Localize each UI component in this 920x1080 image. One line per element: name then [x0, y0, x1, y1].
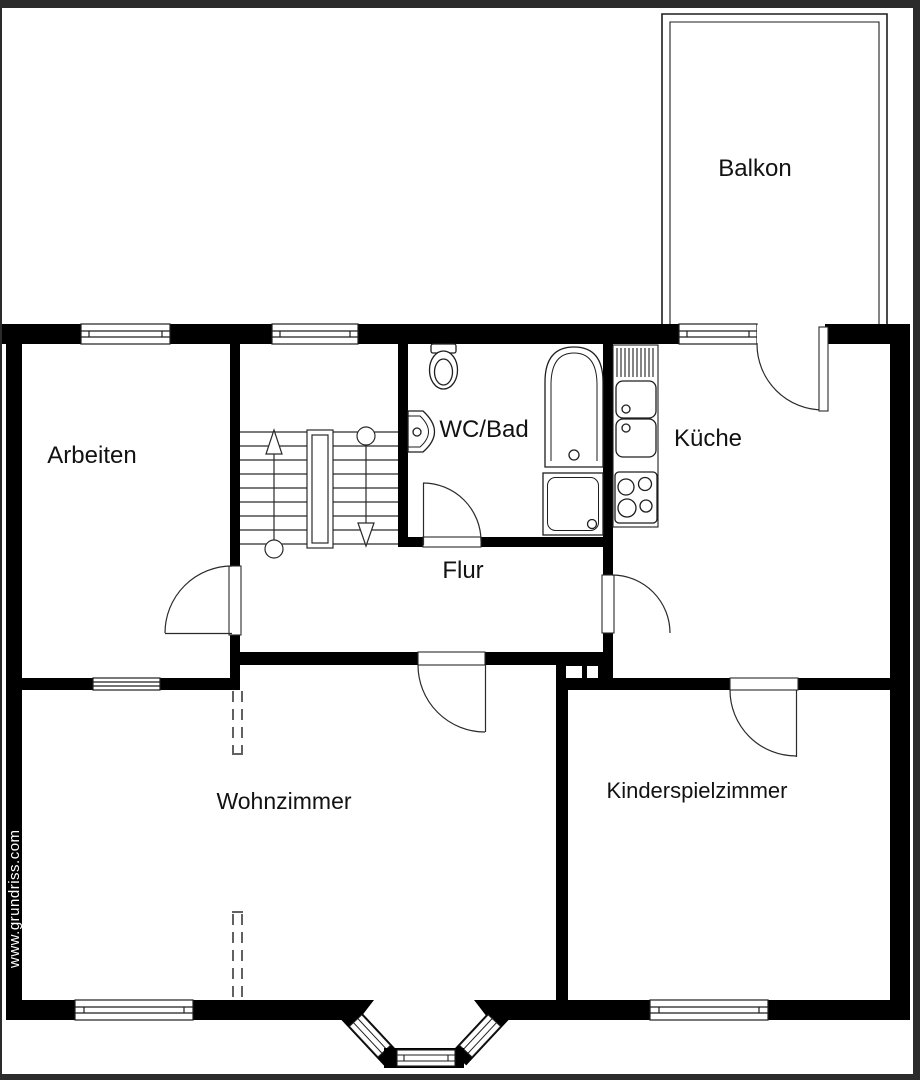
wall-bottom-2 — [193, 1000, 360, 1020]
wall-wc-left — [398, 344, 408, 547]
wall-flur-bottom-a — [240, 652, 418, 665]
room-label-flur: Flur — [442, 557, 483, 584]
bay-window-bottom — [397, 1050, 455, 1066]
wall-bottom-3 — [498, 1000, 650, 1020]
wall-top-2 — [170, 324, 272, 344]
window-wohnzimmer — [75, 1000, 193, 1020]
wall-arbeiten-wohn-a — [6, 678, 93, 690]
bathtub-icon — [545, 347, 603, 467]
window-stairwell — [272, 324, 358, 344]
chimney-vent-1 — [566, 666, 582, 678]
window-interior-arbeiten-wohn — [93, 678, 160, 690]
window-arbeiten — [81, 324, 170, 344]
room-label-wohnzimmer: Wohnzimmer — [216, 788, 351, 814]
shower-icon — [543, 473, 603, 535]
room-label-arbeiten: Arbeiten — [47, 442, 136, 469]
wall-bottom-1 — [6, 1000, 75, 1020]
room-label-kueche: Küche — [674, 425, 742, 452]
wall-right — [890, 324, 910, 1020]
room-label-kinderspielzimmer: Kinderspielzimmer — [607, 778, 788, 803]
wall-arbeiten-top — [230, 344, 240, 567]
toilet-icon — [430, 344, 458, 389]
wall-top-3 — [358, 324, 679, 344]
room-label-balkon: Balkon — [718, 155, 791, 182]
wall-kueche-left-top — [603, 344, 613, 575]
wall-kinder-top-a — [610, 678, 730, 690]
window-kueche — [679, 324, 757, 344]
wall-kinder-top-b — [798, 678, 890, 690]
wall-arbeiten-wohn-b — [160, 678, 240, 690]
wall-arbeiten-bottom — [230, 635, 240, 678]
watermark-text: www.grundriss.com — [6, 829, 23, 969]
window-kinderspielzimmer — [650, 1000, 768, 1020]
room-label-wc-bad: WC/Bad — [439, 416, 528, 443]
floor-plan-svg: Balkon Arbeiten WC/Bad Küche Flur Wohnzi… — [0, 0, 920, 1080]
floor-plan-screenshot: Balkon Arbeiten WC/Bad Küche Flur Wohnzi… — [0, 0, 920, 1080]
wall-wc-bottom-b — [481, 537, 613, 547]
wall-bottom-4 — [768, 1000, 890, 1020]
chimney-vent-2 — [587, 666, 598, 678]
wall-wc-bottom-a — [398, 537, 423, 547]
wall-wohn-kinder-divider — [556, 665, 568, 1002]
